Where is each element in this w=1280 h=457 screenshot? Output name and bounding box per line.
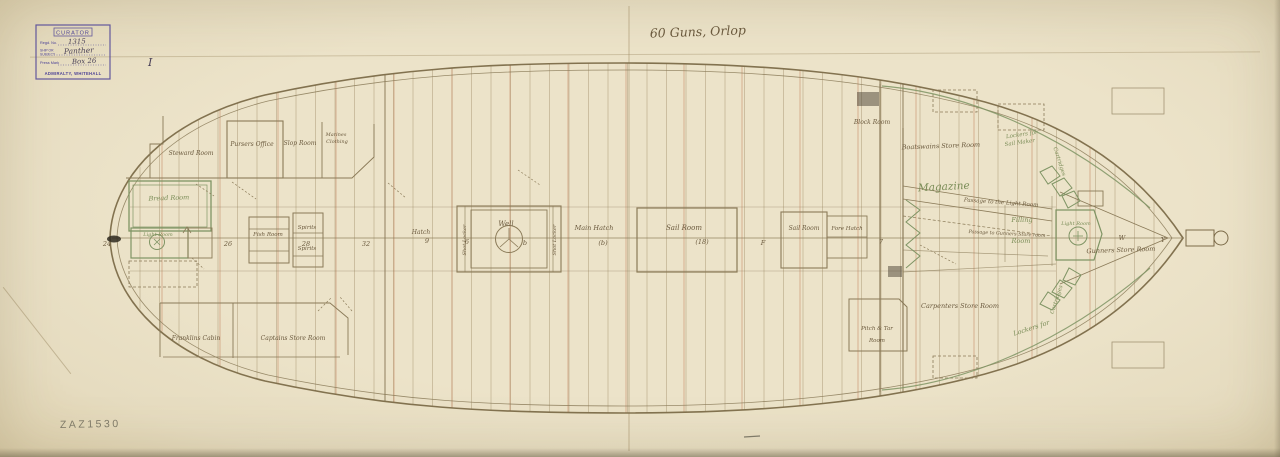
stamp-ship-label-2: SUBJECT [40, 53, 55, 57]
station-mark-label: b [523, 239, 527, 247]
station-mark-label: 26 [223, 240, 232, 248]
station-mark-label: Y [1161, 236, 1166, 244]
press-numeral: I [147, 56, 153, 69]
label-steward-room: Steward Room [169, 150, 214, 157]
plan-title: 60 Guns, Orlop [650, 22, 747, 40]
stamp-footer: ADMIRALTY, WHITEHALL [45, 71, 102, 76]
stamp-regd-label: Regd. No. [40, 41, 57, 45]
station-mark-label: 32 [362, 240, 370, 248]
paper-edge-shadow-right [1274, 0, 1280, 457]
station-mark-label: (18) [695, 238, 709, 246]
label-block-room: Block Room [853, 119, 891, 126]
stamp-curator-label: CURATOR [56, 31, 90, 37]
label-passage-gunners: Passage to Gunners Store room [967, 229, 1046, 239]
midship-compartments [249, 206, 867, 272]
station-mark-label: 7 [879, 238, 884, 246]
station-mark-label: (b) [598, 239, 608, 247]
pencil-dash [744, 436, 760, 437]
label-fish-room: Fish Room [252, 232, 283, 238]
label-filling-room-1: Filling [1010, 216, 1032, 224]
station-mark-label: 28 [301, 240, 310, 248]
curator-stamp: CURATOR Regd. No. 1315 SHIP OR SUBJECT P… [36, 25, 110, 79]
stamp-regd-value: 1315 [68, 37, 87, 46]
station-mark-label: 6 [465, 238, 469, 246]
label-filling-room-2: Room [1011, 237, 1031, 245]
label-pitch-tar-2: Room [868, 338, 885, 344]
label-well: Well [498, 220, 513, 228]
label-spirits-upper: Spirits [298, 225, 317, 231]
pencil-reference-number: ZAZ1530 [60, 418, 121, 431]
label-bread-room: Bread Room [147, 193, 189, 202]
ship-plan-sheet: CURATOR Regd. No. 1315 SHIP OR SUBJECT P… [0, 0, 1280, 457]
label-franklins-cabin: Franklins Cabin [171, 335, 221, 342]
station-mark-label: 9 [425, 237, 429, 245]
station-mark-label: F [760, 239, 766, 247]
plan-drawing: CURATOR Regd. No. 1315 SHIP OR SUBJECT P… [0, 0, 1280, 457]
label-marines-2: Clothing [326, 139, 348, 145]
label-light-room-aft: Light Room [142, 232, 173, 238]
label-pitch-tar-1: Pitch & Tar [860, 326, 893, 332]
label-shot-locker-right: Shot Locker [552, 224, 558, 255]
label-fore-hatch: Fore Hatch [830, 226, 863, 232]
label-cartridges-bottom: Cartridges [1050, 284, 1065, 314]
label-light-room-fwd: Light Room [1060, 221, 1091, 227]
stamp-press-value: Box 26 [71, 57, 97, 66]
paper-edge-shadow-bottom [0, 448, 1280, 457]
label-boatswains-store-room: Boatswains Store Room [901, 141, 981, 152]
label-gunners-store-room: Gunners Store Room [1086, 245, 1155, 255]
stamp-press-label: Press Mark [40, 61, 59, 65]
label-sail-room-small: Sail Room [789, 225, 820, 232]
label-captains-store-room: Captains Store Room [261, 335, 326, 342]
label-magazine: Magazine [917, 180, 970, 195]
label-cartridges-top: Cartridges [1051, 147, 1066, 177]
label-marines-1: Marines [325, 132, 347, 138]
label-main-hatch: Main Hatch [574, 224, 614, 232]
stamp-ship-value: Panther [63, 45, 95, 56]
label-slop-room: Slop Room [284, 140, 317, 147]
label-pursers-office: Pursers Office [229, 141, 274, 148]
room-labels: Steward Room Pursers Office Slop Room Ma… [142, 119, 1155, 344]
label-sail-room-large: Sail Room [666, 224, 702, 232]
label-hatch: Hatch [411, 229, 431, 236]
label-carpenters-store-room: Carpenters Store Room [921, 302, 999, 310]
station-mark-label: 24 [102, 240, 111, 248]
